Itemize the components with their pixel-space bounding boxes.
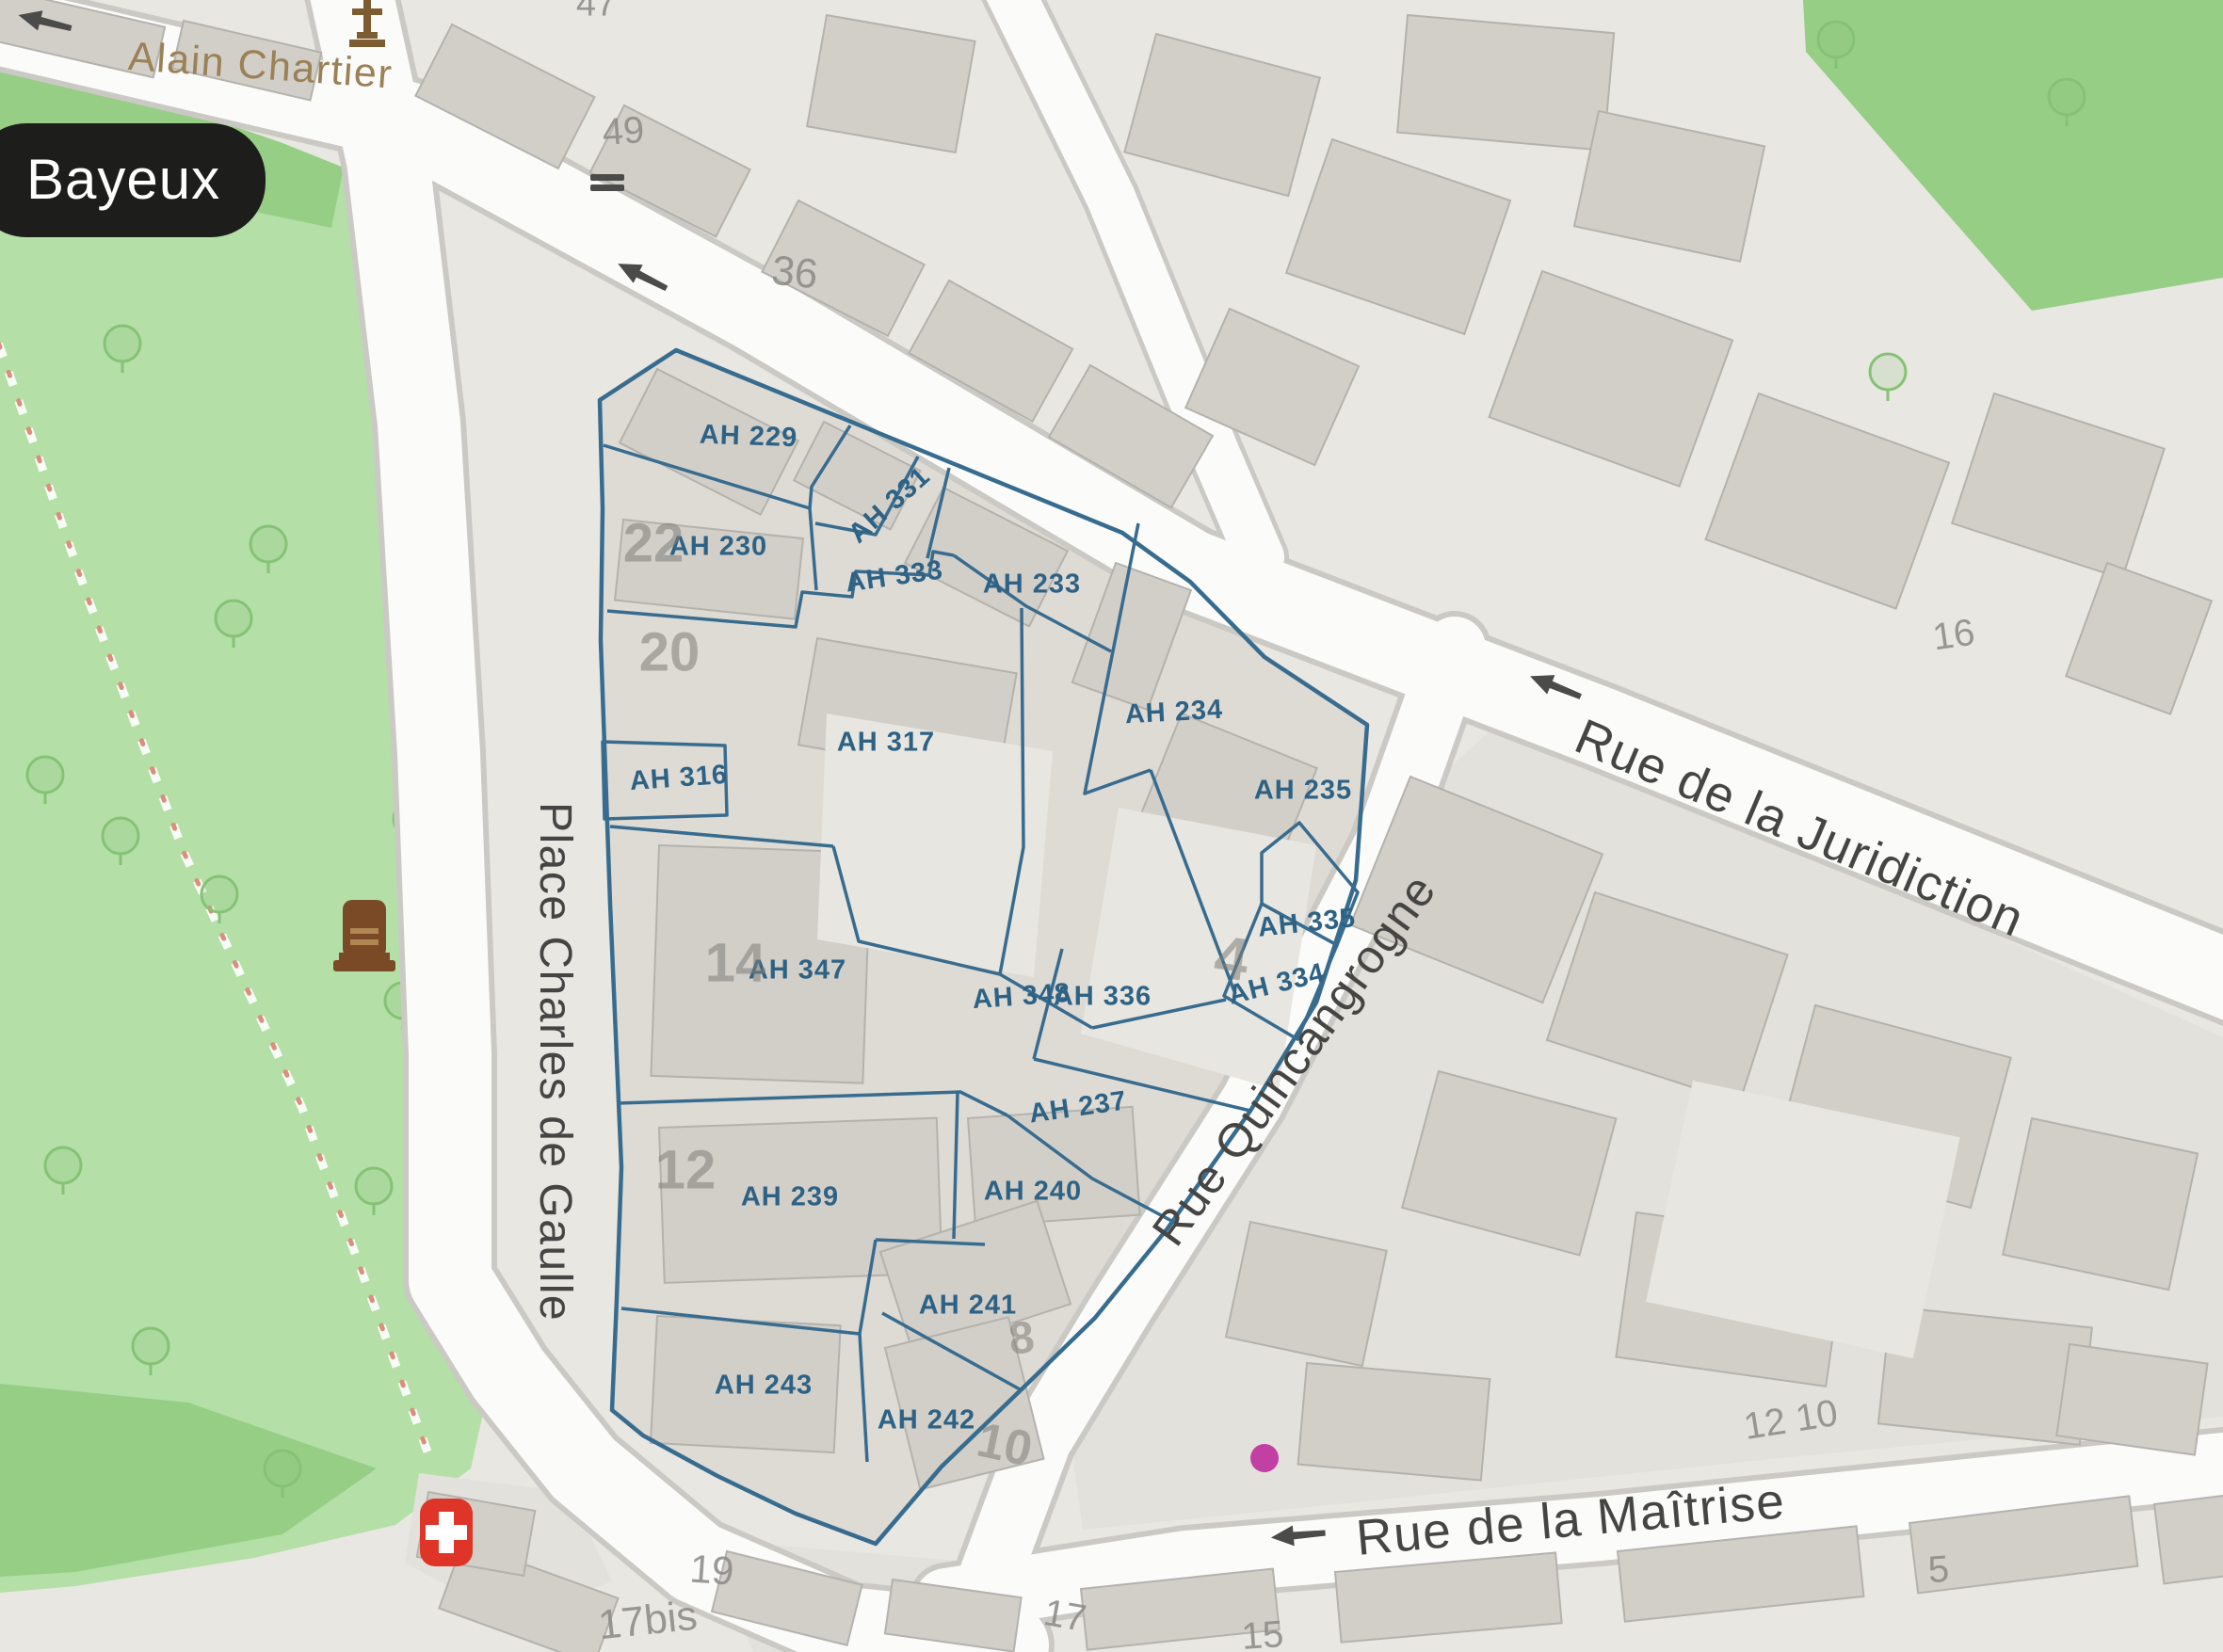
- house-number-36: 36: [769, 248, 820, 299]
- house-number-49: 49: [601, 109, 646, 154]
- parcel-label-ah-235[interactable]: AH 235: [1254, 776, 1352, 807]
- map-graphics: [0, 0, 2223, 1652]
- parcel-label-ah-234[interactable]: AH 234: [1124, 695, 1224, 730]
- house-number-8: 8: [1007, 1311, 1037, 1365]
- one-way-arrow-icon: [1270, 1523, 1327, 1553]
- parcel-label-ah-240[interactable]: AH 240: [984, 1177, 1082, 1208]
- house-number-5: 5: [1926, 1548, 1950, 1592]
- poi-dot: [1250, 1444, 1279, 1472]
- house-number-16: 16: [1930, 612, 1977, 660]
- parcel-label-ah-239[interactable]: AH 239: [741, 1182, 839, 1213]
- parcel-label-ah-230[interactable]: AH 230: [669, 532, 767, 563]
- parcel-label-ah-233[interactable]: AH 233: [983, 569, 1081, 601]
- house-number-19: 19: [688, 1546, 735, 1594]
- parcel-label-ah-317[interactable]: AH 317: [837, 728, 935, 759]
- parcel-label-ah-229[interactable]: AH 229: [699, 420, 797, 455]
- parcel-label-ah-241[interactable]: AH 241: [919, 1291, 1017, 1322]
- green-area-topright: [1803, 0, 2223, 311]
- street-label-place-charles-de-gaulle: Place Charles de Gaulle: [529, 802, 581, 1322]
- house-number-15: 15: [1240, 1613, 1285, 1652]
- house-number-14: 14: [705, 932, 766, 995]
- map-canvas[interactable]: Bayeux AH 229AH 230AH 331AH 333AH 233AH …: [0, 0, 2223, 1652]
- house-number-12: 12: [655, 1139, 717, 1202]
- house-number-20: 20: [639, 621, 701, 684]
- house-number-47: 47: [576, 0, 616, 25]
- house-number-10: 10: [972, 1412, 1037, 1479]
- house-number-22: 22: [623, 512, 685, 575]
- city-badge: Bayeux: [0, 123, 266, 237]
- parcel-label-ah-336[interactable]: AH 336: [1054, 982, 1152, 1013]
- house-number-17: 17: [1040, 1592, 1089, 1641]
- pharmacy-icon: [420, 1499, 473, 1566]
- parcel-label-ah-243[interactable]: AH 243: [715, 1371, 813, 1402]
- parcel-label-ah-242[interactable]: AH 242: [878, 1405, 975, 1436]
